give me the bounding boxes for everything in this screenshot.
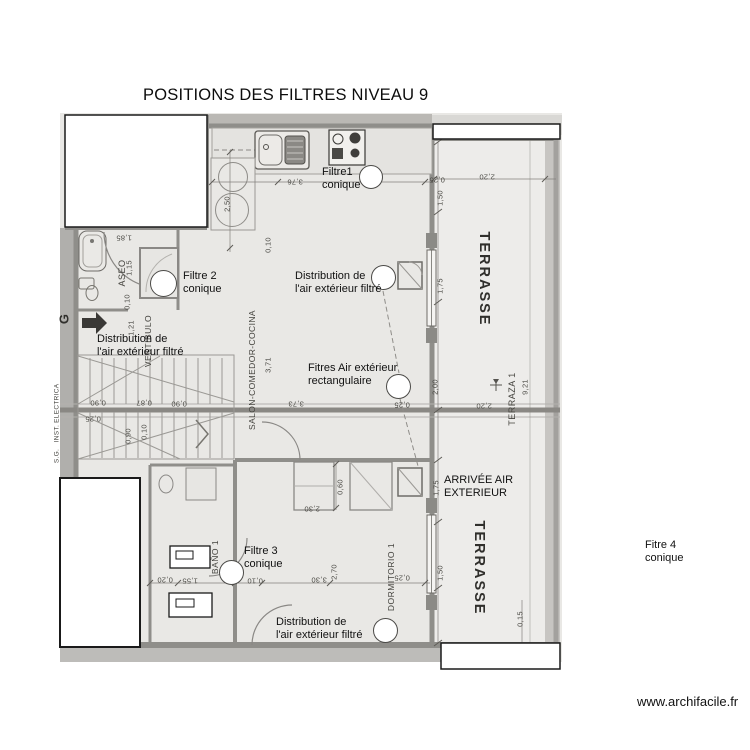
floorplan-drawing <box>0 0 750 750</box>
floorplan-page: POSITIONS DES FILTRES NIVEAU 9 <box>0 0 750 750</box>
floorplan-scan <box>0 0 750 750</box>
watermark-text: www.archifacile.fr <box>637 694 738 709</box>
